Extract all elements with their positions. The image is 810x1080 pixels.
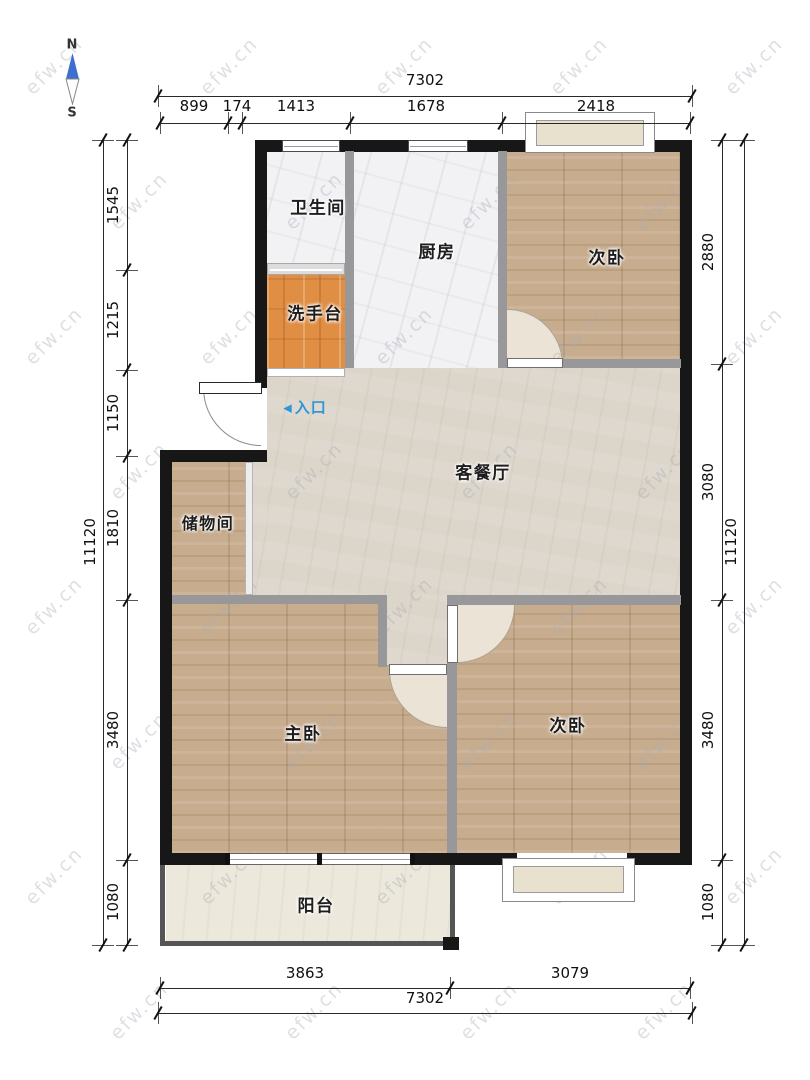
dim-left-seg-3: 1150 xyxy=(104,394,122,432)
entrance-label: ◀入口 xyxy=(283,397,326,418)
watermark-text: efw.cn xyxy=(21,573,88,640)
dim-right-seg-2: 3080 xyxy=(699,463,717,501)
wall-left-upper xyxy=(255,140,267,388)
wall-bottom-3 xyxy=(627,853,692,865)
living-floor-left xyxy=(253,462,267,595)
compass-south-label: S xyxy=(67,106,76,121)
wall-bottom-1 xyxy=(160,853,225,865)
wall-left-lower xyxy=(160,450,172,865)
label-living-dining: 客餐厅 xyxy=(455,459,511,484)
dim-bottom-seg-1: 3863 xyxy=(286,964,324,982)
compass-needle-icon xyxy=(64,53,81,105)
watermark-text: efw.cn xyxy=(721,843,788,910)
label-balcony: 阳台 xyxy=(298,892,335,917)
wall-bedroom-bottom-north xyxy=(447,595,681,605)
watermark-text: efw.cn xyxy=(546,33,613,100)
balcony-corner-post xyxy=(443,937,459,950)
dim-top-seg-3: 1413 xyxy=(277,97,315,115)
label-storage: 储物间 xyxy=(182,510,235,534)
wall-kitchen-bedroom xyxy=(498,151,507,368)
balcony-door-tick xyxy=(317,853,322,865)
watermark-text: efw.cn xyxy=(721,303,788,370)
dim-top-seg-1: 899 xyxy=(180,97,209,115)
dim-top-seg-2: 174 xyxy=(223,97,252,115)
label-bedroom-bottom: 次卧 xyxy=(550,712,587,737)
watermark-text: efw.cn xyxy=(806,168,810,235)
entrance-door-leaf xyxy=(199,382,262,394)
wall-hall-stub xyxy=(378,595,387,667)
balcony-wall-left xyxy=(160,865,165,946)
label-bathroom: 卫生间 xyxy=(290,194,346,219)
dim-left-seg-4: 1810 xyxy=(104,509,122,547)
bathroom-counter xyxy=(267,263,345,275)
compass-north-label: N xyxy=(67,38,78,53)
dim-left-total: 11120 xyxy=(81,518,99,566)
dim-top-seg-4: 1678 xyxy=(407,97,445,115)
watermark-text: efw.cn xyxy=(21,843,88,910)
label-kitchen: 厨房 xyxy=(419,238,456,263)
bedroom-top-door-leaf xyxy=(507,358,563,368)
watermark-text: efw.cn xyxy=(721,33,788,100)
master-door-leaf xyxy=(389,664,447,675)
dim-bottom-total: 7302 xyxy=(406,989,444,1007)
wall-bath-kitchen xyxy=(345,151,354,368)
wall-entry xyxy=(160,450,267,462)
watermark-text: efw.cn xyxy=(806,438,810,505)
dim-bottom-seg-2: 3079 xyxy=(551,964,589,982)
wall-master-north xyxy=(172,595,383,604)
dim-top-seg-5: 2418 xyxy=(577,97,615,115)
dim-right-seg-1: 2880 xyxy=(699,233,717,271)
entrance-door-swing xyxy=(203,388,261,446)
window-bathroom xyxy=(282,140,340,152)
watermark-text: efw.cn xyxy=(806,708,810,775)
balcony-wall-right xyxy=(450,865,455,946)
label-master: 主卧 xyxy=(285,720,322,745)
watermark-text: efw.cn xyxy=(371,33,438,100)
dim-right-seg-3: 3480 xyxy=(699,711,717,749)
dimension-line xyxy=(744,140,745,945)
watermark-text: efw.cn xyxy=(196,303,263,370)
dimension-line xyxy=(127,140,128,945)
entrance-arrow-icon: ◀ xyxy=(283,402,292,415)
balcony-wall-bottom xyxy=(160,941,455,946)
dim-left-seg-2: 1215 xyxy=(104,301,122,339)
wall-bedroom-top-south xyxy=(563,359,681,368)
watermark-text: efw.cn xyxy=(196,33,263,100)
watermark-text: efw.cn xyxy=(806,978,810,1045)
label-washstand: 洗手台 xyxy=(287,300,343,325)
storage-partition xyxy=(245,462,253,595)
watermark-text: efw.cn xyxy=(21,303,88,370)
dimension-line xyxy=(158,1013,692,1014)
dim-right-seg-4: 1080 xyxy=(699,883,717,921)
dim-top-total: 7302 xyxy=(406,71,444,89)
entrance-text: 入口 xyxy=(295,399,327,417)
balcony-door-tick xyxy=(225,853,230,865)
watermark-text: efw.cn xyxy=(721,573,788,640)
bedroom-bottom-door-leaf xyxy=(447,605,458,663)
dim-left-seg-1: 1545 xyxy=(104,186,122,224)
wall-bedroom-bottom-west xyxy=(447,663,457,853)
dim-left-seg-6: 1080 xyxy=(104,883,122,921)
dim-left-seg-5: 3480 xyxy=(104,711,122,749)
washstand-slide-door xyxy=(267,368,345,377)
dim-right-total: 11120 xyxy=(722,518,740,566)
label-bedroom-top: 次卧 xyxy=(589,244,626,269)
wall-right xyxy=(680,140,692,865)
floor-plan: 卫生间 厨房 次卧 洗手台 客餐厅 储物间 主卧 次卧 阳台 ◀入口 N S 7… xyxy=(0,0,810,1080)
bay-window-bottom-inner xyxy=(513,866,624,893)
window-kitchen xyxy=(408,140,468,152)
balcony-door-tick xyxy=(410,853,415,865)
